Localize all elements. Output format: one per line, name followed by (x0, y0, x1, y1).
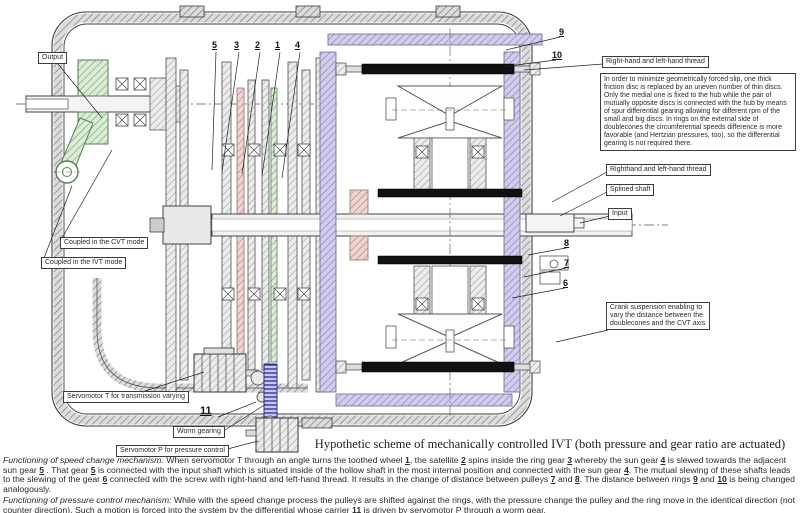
red-hub-upper (350, 190, 368, 214)
part-label-3: 3 (234, 41, 239, 50)
part-label-7: 7 (564, 259, 569, 268)
part-label-9: 9 (559, 28, 564, 37)
callout-thread-top: Right-hand and left-hand thread (602, 56, 709, 68)
callout-worm-gearing: Worm gearing (173, 426, 225, 438)
pressure-control-paragraph: Functioning of pressure control mechanis… (3, 496, 797, 513)
part-label-5: 5 (212, 41, 217, 50)
ivt-schematic-drawing (0, 0, 800, 455)
part-label-1: 1 (275, 41, 280, 50)
red-hub-lower (350, 236, 368, 260)
part-label-8: 8 (564, 239, 569, 248)
doublecone-lower (386, 314, 514, 364)
callout-crank-suspension: Crank suspension enabling to vary the di… (606, 302, 710, 330)
callout-splined-shaft: Splined shaft (606, 184, 654, 196)
callout-thread-mid: Righthand and left-hand thread (606, 164, 711, 176)
screw-lower-middle (378, 256, 522, 264)
note-friction-discs: In order to minimize geometrically force… (600, 73, 796, 151)
callout-coupled-ivt: Coupled in the IVT mode (41, 257, 126, 269)
part-label-6: 6 (563, 279, 568, 288)
part-label-2: 2 (255, 41, 260, 50)
callout-servomotor-p: Servomotor P for pressure control (116, 445, 229, 457)
screw-bottom (336, 361, 540, 373)
callout-servomotor-t: Servomotor T for transmission varying (63, 391, 189, 403)
speed-change-paragraph: Functioning of speed change mechanism: W… (3, 456, 797, 494)
screw-top (336, 63, 540, 75)
part-label-10: 10 (552, 51, 562, 60)
doublecone-upper (386, 86, 514, 138)
screw-upper-middle (378, 189, 522, 197)
thin-disc-block-upper (378, 138, 522, 197)
diagram-title: Hypothetic scheme of mechanically contro… (310, 437, 790, 452)
footer-notes: Functioning of speed change mechanism: W… (3, 456, 797, 513)
callout-input: Input (608, 208, 632, 220)
part-label-4: 4 (295, 41, 300, 50)
callout-coupled-cvt: Coupled in the CVT mode (60, 237, 148, 249)
callout-output: Output (38, 52, 67, 64)
part-label-11: 11 (200, 407, 212, 416)
ivt-scheme-page: Output Right-hand and left-hand thread I… (0, 0, 800, 513)
